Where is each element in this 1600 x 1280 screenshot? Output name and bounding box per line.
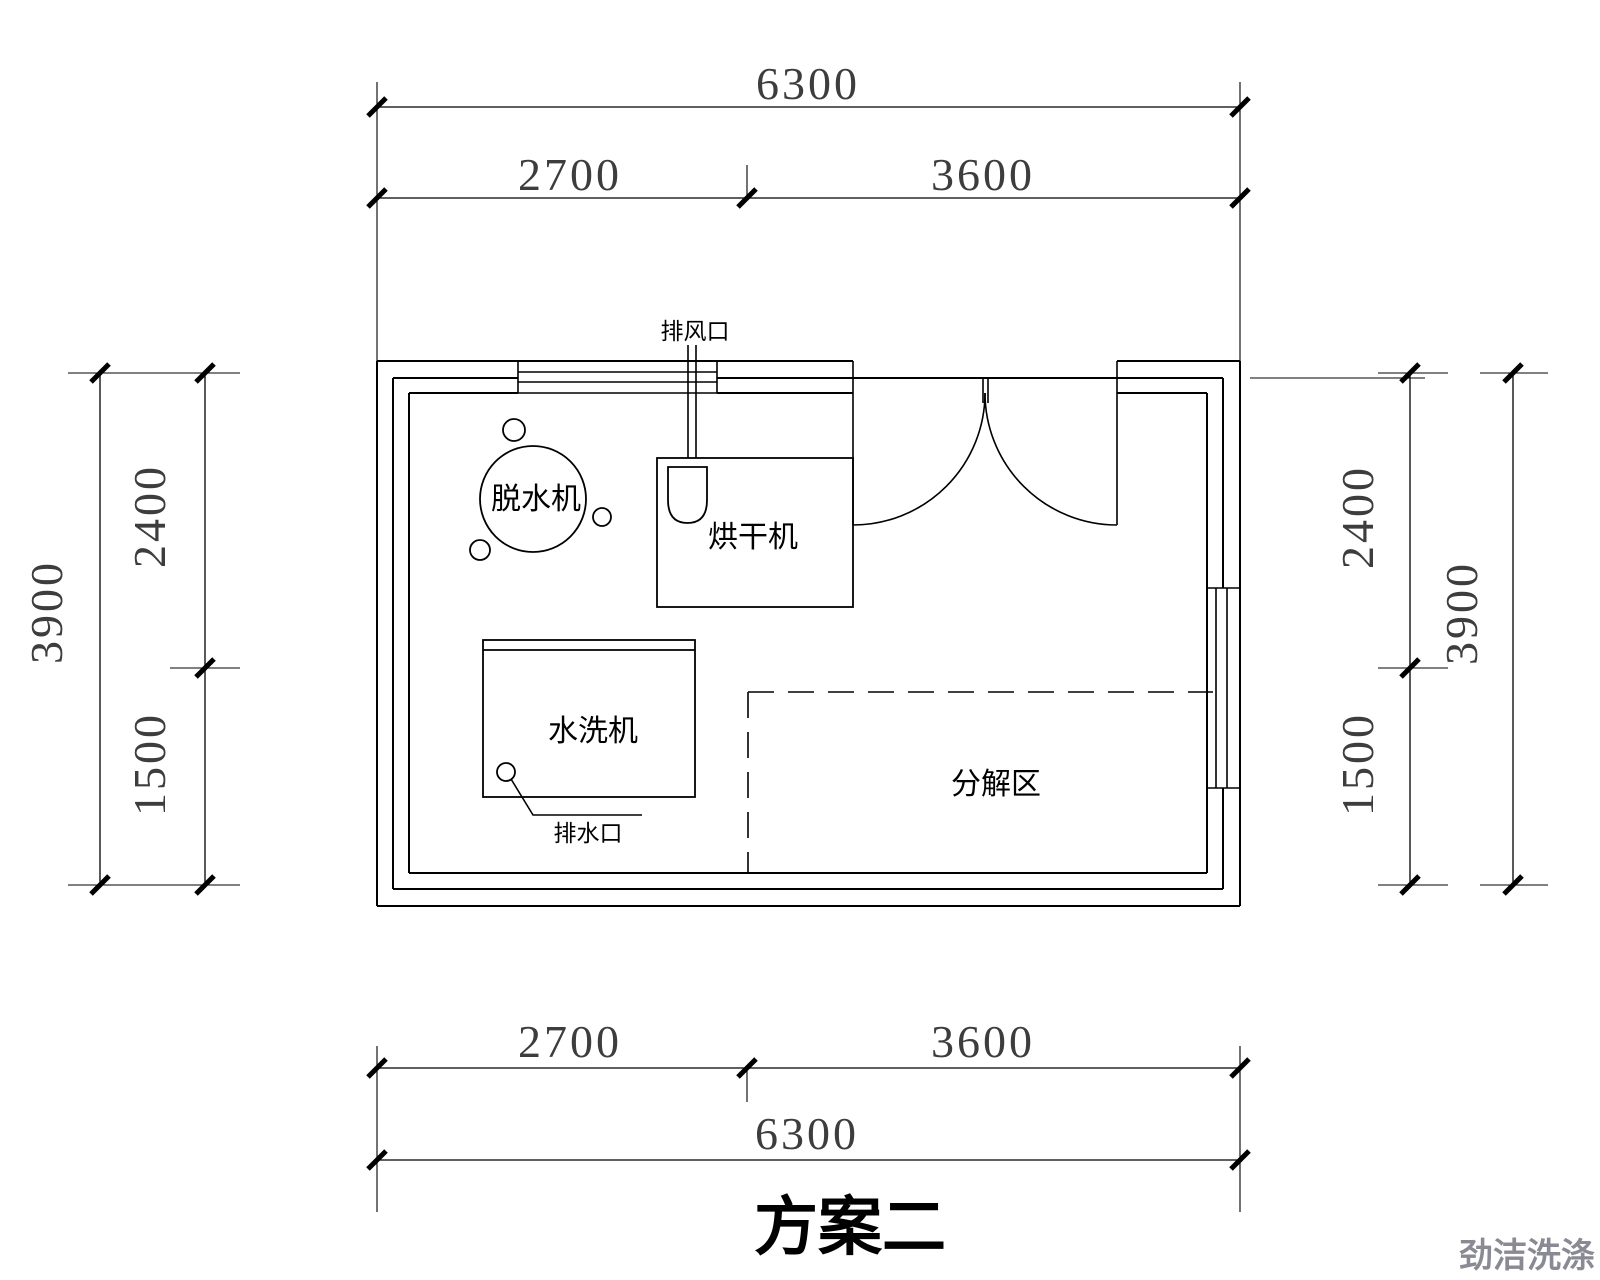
dim-left-seg2: 1500: [124, 712, 175, 816]
watermark: 劲洁洗涤: [1459, 1237, 1595, 1275]
dimension-top: 6300 2700 3600: [368, 58, 1249, 361]
dehydrator-label: 脱水机: [491, 483, 581, 516]
exhaust-vent-label: 排风口: [661, 319, 730, 344]
right-window: [1207, 588, 1240, 788]
double-door: [853, 361, 1117, 525]
decompose-area-label: 分解区: [951, 768, 1041, 801]
dimension-left: 3900 2400 1500: [21, 364, 240, 894]
dim-left-total: 3900: [21, 560, 72, 664]
dim-top-total: 6300: [756, 58, 860, 109]
dimension-bottom: 2700 3600 6300: [368, 1016, 1249, 1212]
floor-plan-drawing: 脱水机 烘干机 排风口 水洗机 排水口 分解区 6300 2700 3600: [0, 0, 1600, 1280]
floor-plan-page: 脱水机 烘干机 排风口 水洗机 排水口 分解区 6300 2700 3600: [0, 0, 1600, 1280]
dim-right-total: 3900: [1436, 561, 1487, 665]
dim-top-seg1: 2700: [518, 149, 622, 200]
dim-right-seg1: 2400: [1332, 465, 1383, 569]
washer-label: 水洗机: [548, 715, 638, 748]
dim-top-seg2: 3600: [931, 149, 1035, 200]
walls: [377, 361, 1240, 906]
dimension-right: 2400 1500 3900: [1250, 364, 1548, 894]
dim-bottom-seg2: 3600: [931, 1016, 1035, 1067]
dim-left-seg1: 2400: [124, 464, 175, 568]
dryer-label: 烘干机: [708, 521, 798, 554]
drain-outlet-label: 排水口: [554, 821, 623, 846]
dim-bottom-total: 6300: [755, 1108, 859, 1159]
plan-title: 方案二: [754, 1192, 946, 1263]
dim-right-seg2: 1500: [1332, 712, 1383, 816]
top-window: [518, 361, 717, 393]
dim-bottom-seg1: 2700: [518, 1016, 622, 1067]
